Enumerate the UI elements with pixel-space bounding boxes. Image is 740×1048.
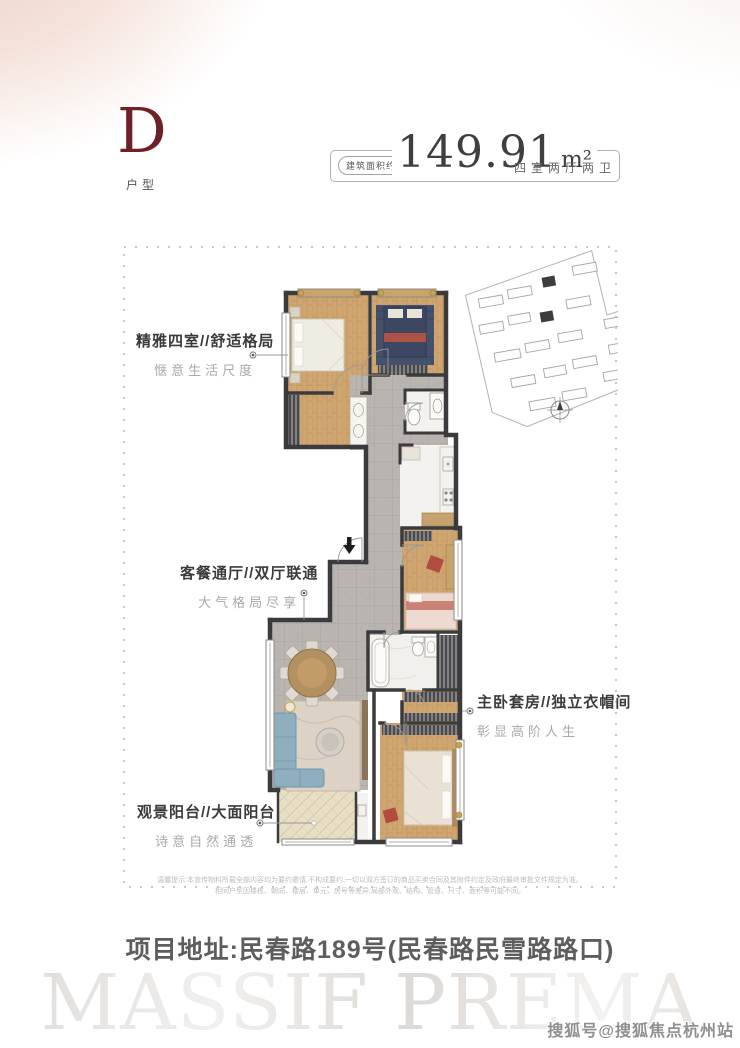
hall-wardrobe xyxy=(288,395,300,445)
bedroom-2-bed xyxy=(376,305,434,365)
callout-subtitle: 惬意生活尺度 xyxy=(136,360,274,379)
callout-master-suite: 主卧套房//独立衣帽间 彰显高阶人生 xyxy=(477,691,631,740)
callout-subtitle: 大气格局尽享 xyxy=(180,592,318,611)
sohu-account-watermark: 搜狐号@搜狐焦点杭州站 xyxy=(547,1017,734,1041)
floor-lamp xyxy=(285,702,295,712)
disclaimer-line-1: 温馨提示:本宣传物料所载全部内容均为要约邀请,不构成要约,一切以双方签订的商品买… xyxy=(120,875,620,886)
unit-type-letter: D xyxy=(117,100,167,162)
hall-vanity xyxy=(350,397,367,445)
callout-title: 精雅四室//舒适格局 xyxy=(136,330,274,351)
callout-title: 观景阳台//大面阳台 xyxy=(137,801,275,822)
tv-cabinet xyxy=(362,700,368,780)
callout-subtitle: 诗意自然通透 xyxy=(137,831,275,850)
callout-bedrooms: 精雅四室//舒适格局 惬意生活尺度 xyxy=(136,330,274,379)
disclaimer: 温馨提示:本宣传物料所载全部内容均为要约邀请,不构成要约,一切以双方签订的商品买… xyxy=(120,875,620,897)
callout-subtitle: 彰显高阶人生 xyxy=(477,721,631,740)
site-plan-minimap xyxy=(462,245,618,433)
callout-title: 客餐通厅//双厅联通 xyxy=(180,562,318,583)
dining-table xyxy=(280,641,344,706)
room-configuration: 四室两厅两卫 xyxy=(514,159,616,176)
unit-type-label: 户型 xyxy=(126,176,158,193)
callout-title: 主卧套房//独立衣帽间 xyxy=(477,691,631,712)
callout-balcony: 观景阳台//大面阳台 诗意自然通透 xyxy=(137,801,275,850)
disclaimer-line-2: 相同户型因楼栋、朝向、楼层、单元、房号等差异,局部外观、结构、管道、尺寸、面积等… xyxy=(120,886,620,897)
callout-living-dining: 客餐通厅//双厅联通 大气格局尽享 xyxy=(180,562,318,611)
